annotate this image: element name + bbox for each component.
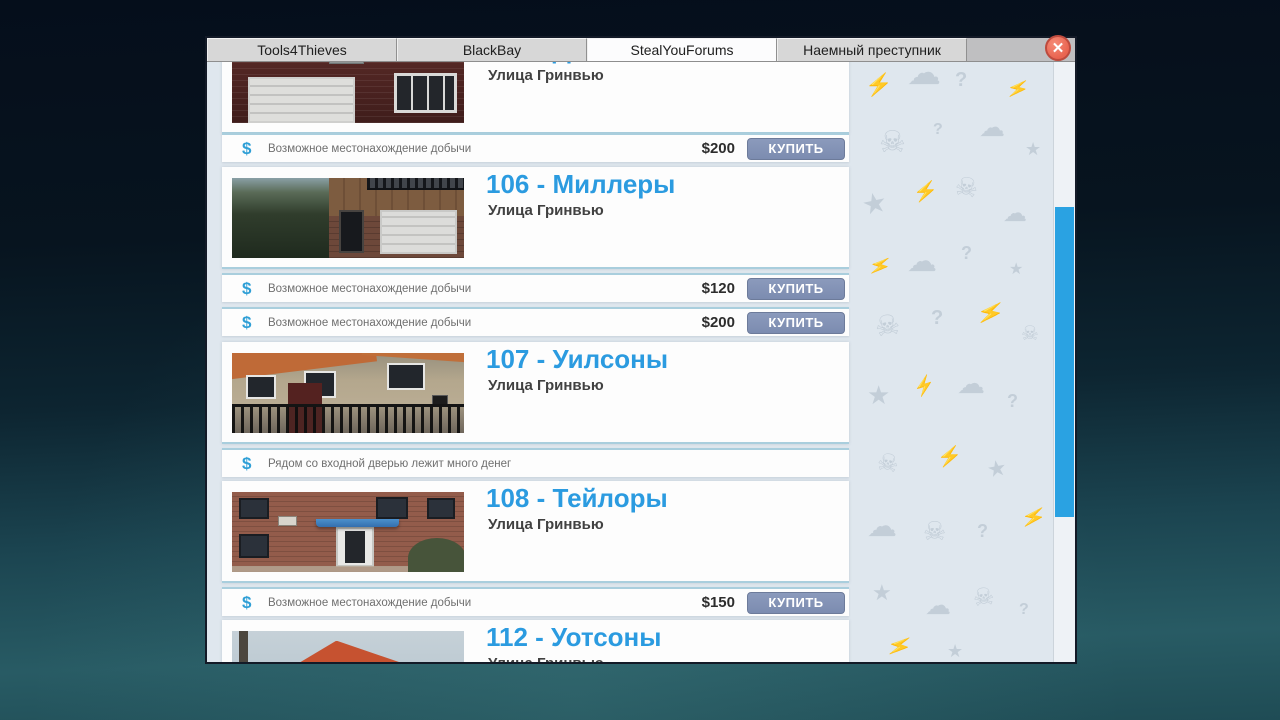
skull-icon: ☠ — [873, 310, 902, 341]
tab-bar: Tools4Thieves BlackBay StealYouForums На… — [207, 38, 1075, 62]
buy-button[interactable]: КУПИТЬ — [747, 592, 845, 614]
lightning-icon: ⚡ — [937, 447, 962, 467]
cloud-icon: ☁ — [979, 114, 1005, 140]
photo-detail — [239, 631, 248, 662]
listing-card-108: 108 - Тейлоры Улица Гринвью — [222, 481, 849, 583]
offer-row: $ Рядом со входной дверью лежит много де… — [222, 448, 849, 477]
skull-icon: ☠ — [953, 172, 980, 202]
offer-price: $200 — [702, 314, 735, 331]
offer-price: $200 — [702, 140, 735, 157]
cloud-icon: ☁ — [907, 247, 937, 277]
photo-detail — [239, 498, 269, 519]
cloud-icon: ☁ — [907, 62, 941, 90]
star-icon: ★ — [985, 456, 1008, 481]
listing-title: 112 - Уотсоны — [486, 622, 661, 653]
star-icon: ★ — [1025, 140, 1041, 158]
question-icon: ? — [1007, 392, 1018, 410]
buy-button[interactable]: КУПИТЬ — [747, 312, 845, 334]
photo-detail — [376, 497, 408, 519]
skull-icon: ☠ — [972, 585, 996, 611]
offer-description: Возможное местонахождение добычи — [268, 597, 702, 609]
photo-detail — [278, 516, 297, 526]
scrollbar-thumb[interactable] — [1055, 207, 1074, 517]
dollar-icon: $ — [242, 313, 268, 333]
photo-detail — [239, 534, 269, 558]
photo-detail — [380, 210, 457, 254]
star-icon: ★ — [872, 582, 892, 604]
star-icon: ★ — [859, 188, 889, 221]
lightning-icon: ⚡ — [913, 182, 938, 202]
cloud-icon: ☁ — [957, 370, 985, 398]
scrollbar-track[interactable] — [1053, 62, 1075, 662]
question-icon: ? — [1019, 602, 1029, 618]
photo-detail — [316, 519, 400, 527]
offer-price: $120 — [702, 280, 735, 297]
photo-detail — [387, 363, 424, 390]
photo-detail — [232, 178, 329, 258]
skull-icon: ☠ — [1021, 324, 1039, 344]
lightning-icon: ⚡ — [911, 374, 938, 397]
offer-row: $ Возможное местонахождение добычи $120 … — [222, 273, 849, 302]
tab-blackbay[interactable]: BlackBay — [397, 38, 587, 61]
listing-title: 105 - Дэвисы — [486, 62, 654, 65]
skull-icon: ☠ — [875, 450, 900, 477]
lightning-icon: ⚡ — [975, 299, 1007, 327]
listing-photo — [232, 631, 464, 662]
question-icon: ? — [961, 244, 972, 262]
photo-detail — [232, 404, 464, 433]
buy-button[interactable]: КУПИТЬ — [747, 278, 845, 300]
star-icon: ★ — [867, 382, 890, 408]
photo-detail — [246, 375, 276, 399]
listing-address: Улица Гринвью — [488, 655, 604, 662]
listing-photo — [232, 178, 464, 258]
cloud-icon: ☁ — [867, 512, 897, 542]
listing-card-105: 105 - Дэвисы Улица Гринвью — [222, 62, 849, 134]
buy-button[interactable]: КУПИТЬ — [747, 138, 845, 160]
tab-tools4thieves[interactable]: Tools4Thieves — [207, 38, 397, 61]
offer-price: $150 — [702, 594, 735, 611]
tab-hired-criminal[interactable]: Наемный преступник — [777, 38, 967, 61]
photo-detail — [248, 77, 355, 123]
photo-detail — [329, 62, 364, 64]
cloud-icon: ☁ — [925, 592, 951, 618]
photo-detail — [232, 641, 464, 662]
listing-card-106: 106 - Миллеры Улица Гринвью — [222, 167, 849, 269]
photo-detail — [408, 538, 464, 572]
offer-description: Рядом со входной дверью лежит много дене… — [268, 458, 849, 470]
listing-title: 106 - Миллеры — [486, 169, 675, 200]
photo-detail — [339, 210, 365, 253]
listing-address: Улица Гринвью — [488, 67, 604, 84]
question-icon: ? — [955, 70, 967, 90]
lightning-icon: ⚡ — [1019, 506, 1048, 531]
skull-icon: ☠ — [923, 518, 946, 544]
offer-row: $ Возможное местонахождение добычи $150 … — [222, 587, 849, 616]
photo-detail — [345, 531, 366, 563]
star-icon: ★ — [1009, 262, 1023, 278]
dollar-icon: $ — [242, 139, 268, 159]
tab-stealyouforums[interactable]: StealYouForums — [587, 38, 777, 61]
dollar-icon: $ — [242, 279, 268, 299]
listing-card-107: 107 - Уилсоны Улица Гринвью — [222, 342, 849, 444]
forum-listings-page: ⚡ ☁ ? ⚡ ☠ ? ☁ ★ ★ ⚡ ☠ ☁ ⚡ ☁ ? ★ ☠ ? ⚡ ☠ — [207, 62, 1075, 662]
listing-photo — [232, 62, 464, 123]
listing-title: 108 - Тейлоры — [486, 483, 668, 514]
question-icon: ? — [977, 522, 988, 540]
lightning-icon: ⚡ — [867, 254, 894, 278]
browser-window: Tools4Thieves BlackBay StealYouForums На… — [205, 36, 1077, 664]
lightning-icon: ⚡ — [884, 633, 914, 660]
offer-row: $ Возможное местонахождение добычи $200 … — [222, 133, 849, 162]
question-icon: ? — [933, 122, 943, 138]
lightning-icon: ⚡ — [865, 74, 892, 96]
listing-card-112: 112 - Уотсоны Улица Гринвью — [222, 620, 849, 662]
listing-address: Улица Гринвью — [488, 377, 604, 394]
photo-detail — [427, 498, 455, 519]
skull-icon: ☠ — [879, 128, 906, 158]
photo-detail — [367, 178, 464, 190]
game-background: Tools4Thieves BlackBay StealYouForums На… — [0, 0, 1280, 720]
listing-title: 107 - Уилсоны — [486, 344, 668, 375]
listing-photo — [232, 353, 464, 433]
offer-row: $ Возможное местонахождение добычи $200 … — [222, 307, 849, 336]
cloud-icon: ☁ — [1003, 202, 1027, 226]
dollar-icon: $ — [242, 454, 268, 474]
listing-address: Улица Гринвью — [488, 202, 604, 219]
listing-photo — [232, 492, 464, 572]
lightning-icon: ⚡ — [1005, 77, 1031, 100]
photo-detail — [394, 73, 457, 113]
dollar-icon: $ — [242, 593, 268, 613]
offer-description: Возможное местонахождение добычи — [268, 317, 702, 329]
star-icon: ★ — [947, 642, 963, 660]
question-icon: ? — [931, 308, 943, 328]
close-icon[interactable]: ✕ — [1045, 35, 1071, 61]
offer-description: Возможное местонахождение добычи — [268, 143, 702, 155]
listing-address: Улица Гринвью — [488, 516, 604, 533]
offer-description: Возможное местонахождение добычи — [268, 283, 702, 295]
